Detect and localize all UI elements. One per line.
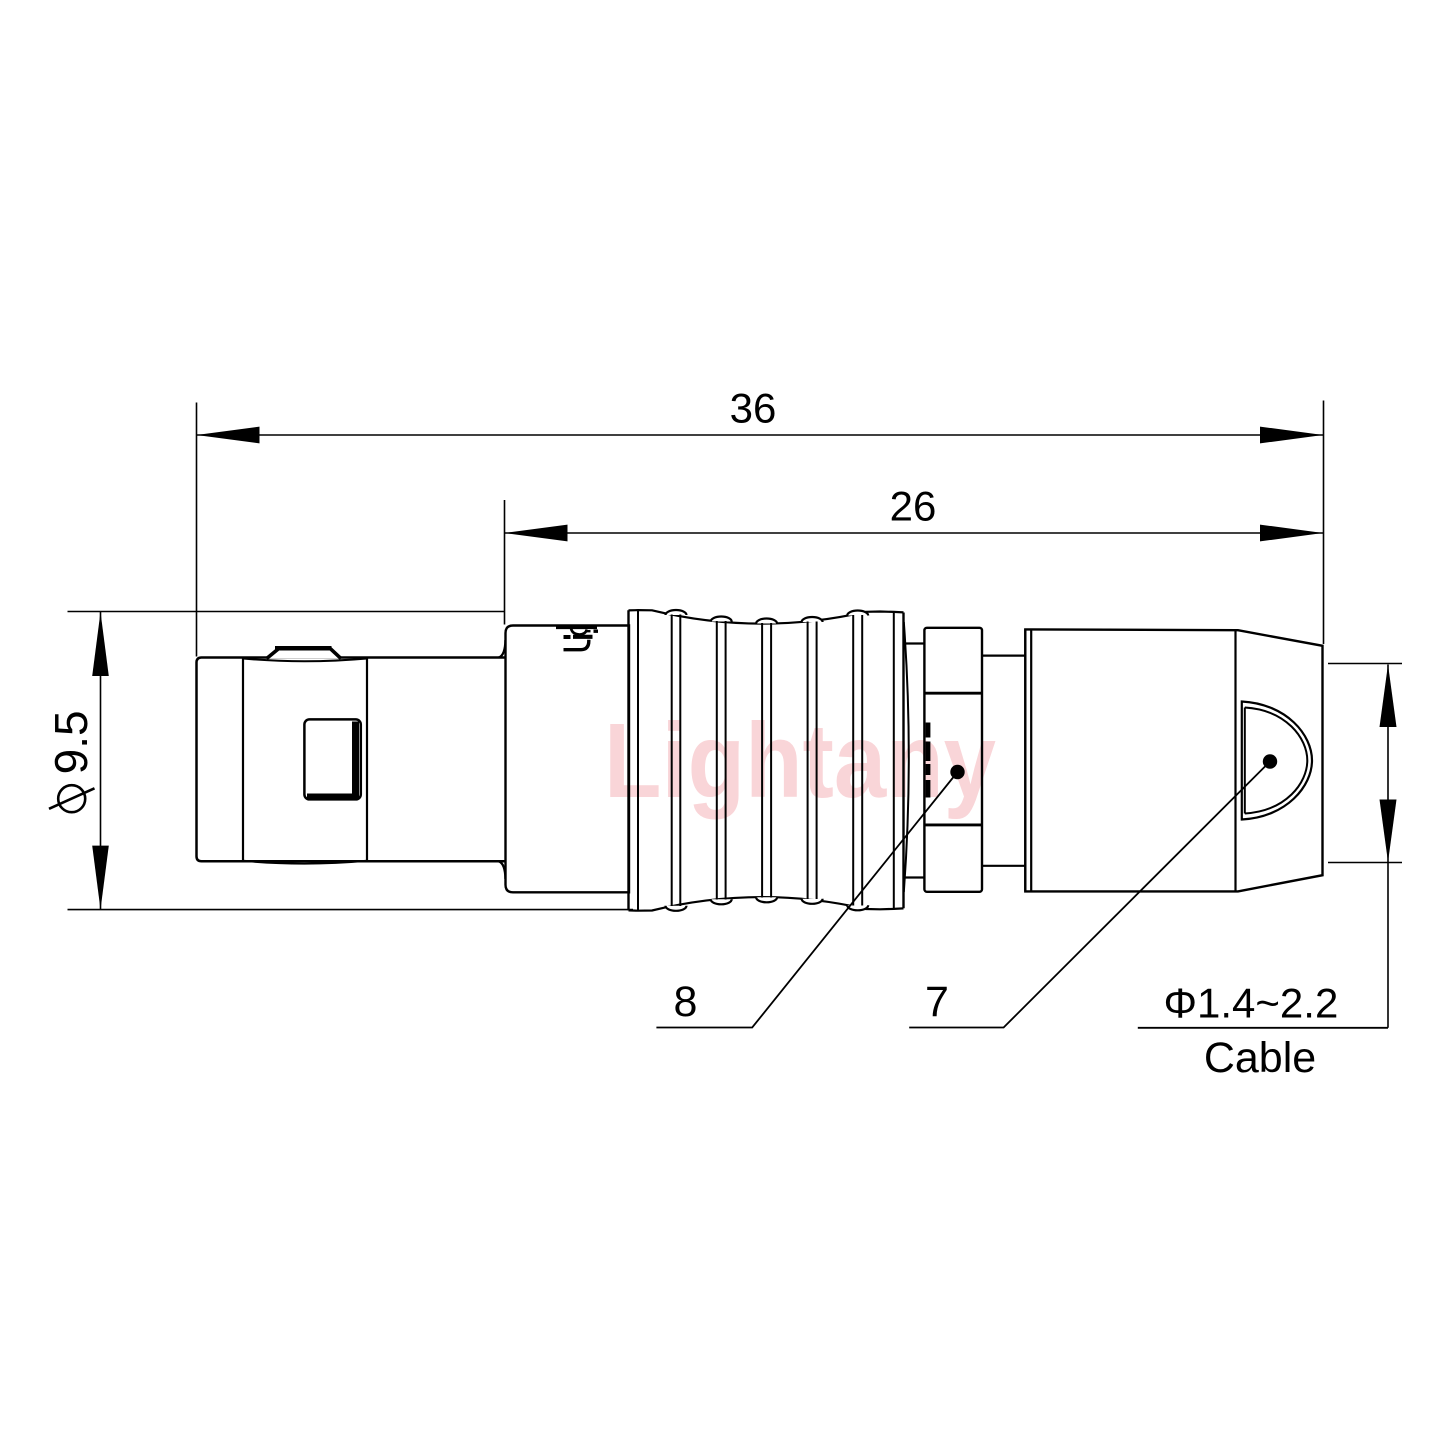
svg-text:36: 36 bbox=[730, 385, 777, 432]
svg-text:7: 7 bbox=[925, 978, 949, 1026]
svg-text:Cable: Cable bbox=[1204, 1034, 1316, 1082]
svg-text:26: 26 bbox=[890, 483, 937, 530]
svg-text:9.5: 9.5 bbox=[45, 710, 97, 774]
svg-text:8: 8 bbox=[674, 978, 698, 1026]
svg-text:Lightany: Lightany bbox=[604, 702, 996, 820]
svg-text:Φ1.4~2.2: Φ1.4~2.2 bbox=[1164, 980, 1339, 1027]
